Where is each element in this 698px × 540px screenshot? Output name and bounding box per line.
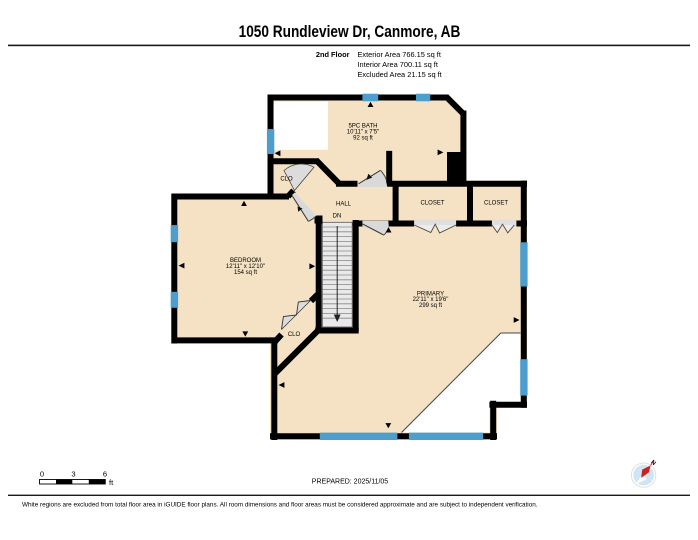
svg-text:HALL: HALL (336, 202, 352, 208)
svg-text:Exterior Area 766.15 sq ft: Exterior Area 766.15 sq ft (358, 50, 441, 59)
svg-text:0: 0 (40, 470, 44, 479)
svg-text:Excluded Area 21.15 sq ft: Excluded Area 21.15 sq ft (358, 70, 442, 79)
svg-text:1050 Rundleview Dr, Canmore, A: 1050 Rundleview Dr, Canmore, AB (239, 23, 461, 41)
svg-text:CLO: CLO (288, 332, 301, 338)
svg-text:ft: ft (109, 478, 114, 487)
svg-text:3: 3 (71, 470, 75, 479)
svg-text:DN: DN (333, 214, 342, 220)
svg-text:Interior Area 700.11 sq ft: Interior Area 700.11 sq ft (358, 60, 438, 69)
svg-text:CLOSET: CLOSET (420, 201, 444, 207)
svg-text:White regions are excluded fro: White regions are excluded from total fl… (22, 502, 538, 509)
svg-text:CLOSET: CLOSET (484, 201, 508, 207)
svg-text:6: 6 (103, 470, 107, 479)
svg-text:2nd Floor: 2nd Floor (316, 50, 350, 59)
svg-text:92 sq ft: 92 sq ft (353, 136, 373, 142)
svg-text:299 sq ft: 299 sq ft (419, 303, 442, 309)
svg-text:PREPARED: 2025/11/05: PREPARED: 2025/11/05 (312, 479, 389, 486)
svg-text:154 sq ft: 154 sq ft (234, 270, 257, 276)
svg-text:CLO: CLO (280, 177, 293, 183)
